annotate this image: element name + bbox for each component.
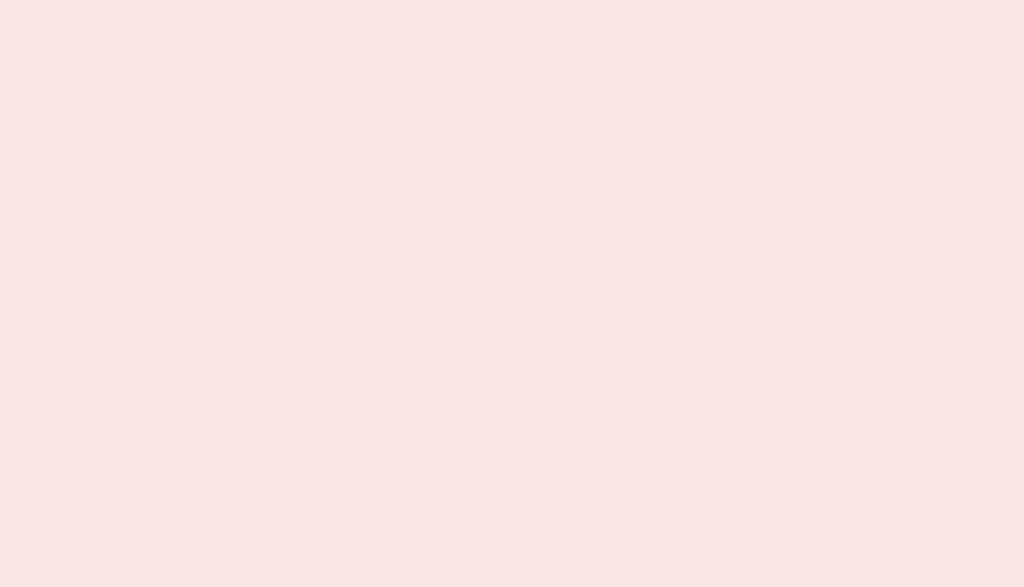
page-background xyxy=(0,0,1024,587)
floorplan-svg xyxy=(0,0,1024,587)
